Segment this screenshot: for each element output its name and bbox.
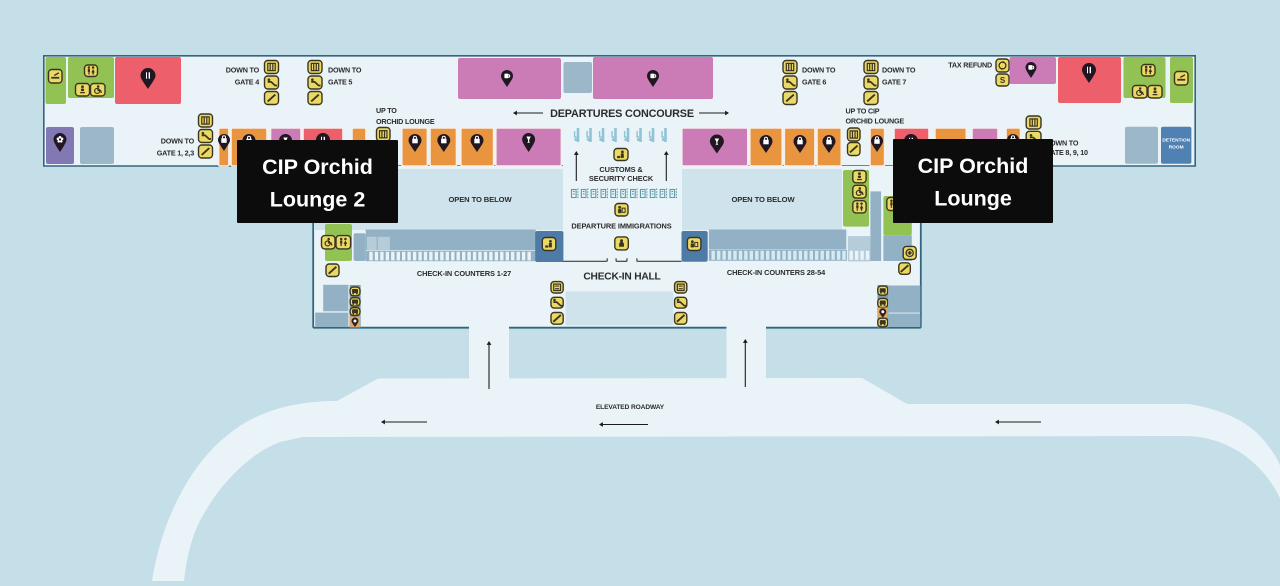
svg-text:GATE 6: GATE 6 <box>802 78 826 87</box>
svg-text:CHECK-IN HALL: CHECK-IN HALL <box>583 272 660 283</box>
svg-text:DOWN TO: DOWN TO <box>161 137 195 146</box>
svg-text:CHECK-IN COUNTERS 28-54: CHECK-IN COUNTERS 28-54 <box>727 268 826 277</box>
svg-text:ORCHID LOUNGE: ORCHID LOUNGE <box>846 117 905 126</box>
svg-text:DEPARTURE IMMIGRATIONS: DEPARTURE IMMIGRATIONS <box>571 222 671 231</box>
svg-text:GATE 5: GATE 5 <box>328 78 352 87</box>
svg-text:OPEN TO BELOW: OPEN TO BELOW <box>731 195 795 204</box>
svg-text:DETENTION: DETENTION <box>1162 138 1190 144</box>
svg-text:UP TO: UP TO <box>376 106 397 115</box>
svg-text:DOWN TO: DOWN TO <box>882 66 916 75</box>
svg-text:CHECK-IN COUNTERS 1-27: CHECK-IN COUNTERS 1-27 <box>417 269 511 278</box>
svg-text:ELEVATED ROADWAY: ELEVATED ROADWAY <box>596 404 665 411</box>
svg-text:GATE 4: GATE 4 <box>235 78 259 87</box>
svg-text:UP TO CIP: UP TO CIP <box>846 107 880 116</box>
svg-text:DEPARTURES CONCOURSE: DEPARTURES CONCOURSE <box>550 108 694 120</box>
svg-text:CUSTOMS &: CUSTOMS & <box>599 165 643 174</box>
svg-text:SECURITY CHECK: SECURITY CHECK <box>589 174 654 183</box>
svg-text:Lounge 2: Lounge 2 <box>270 188 366 212</box>
svg-text:DOWN TO: DOWN TO <box>328 66 362 75</box>
svg-text:S: S <box>1000 76 1006 85</box>
svg-text:DOWN TO: DOWN TO <box>226 66 260 75</box>
svg-text:CIP Orchid: CIP Orchid <box>918 154 1029 178</box>
svg-text:GATE 1, 2,3: GATE 1, 2,3 <box>157 149 194 158</box>
svg-text:CIP Orchid: CIP Orchid <box>262 155 373 179</box>
svg-text:TAX REFUND: TAX REFUND <box>948 61 992 70</box>
svg-text:DOWN TO: DOWN TO <box>802 66 836 75</box>
svg-text:ORCHID LOUNGE: ORCHID LOUNGE <box>376 117 435 126</box>
svg-text:ROOM: ROOM <box>1169 145 1184 151</box>
svg-text:OPEN TO BELOW: OPEN TO BELOW <box>448 195 512 204</box>
svg-text:Lounge: Lounge <box>934 187 1012 211</box>
svg-text:GATE 7: GATE 7 <box>882 78 906 87</box>
